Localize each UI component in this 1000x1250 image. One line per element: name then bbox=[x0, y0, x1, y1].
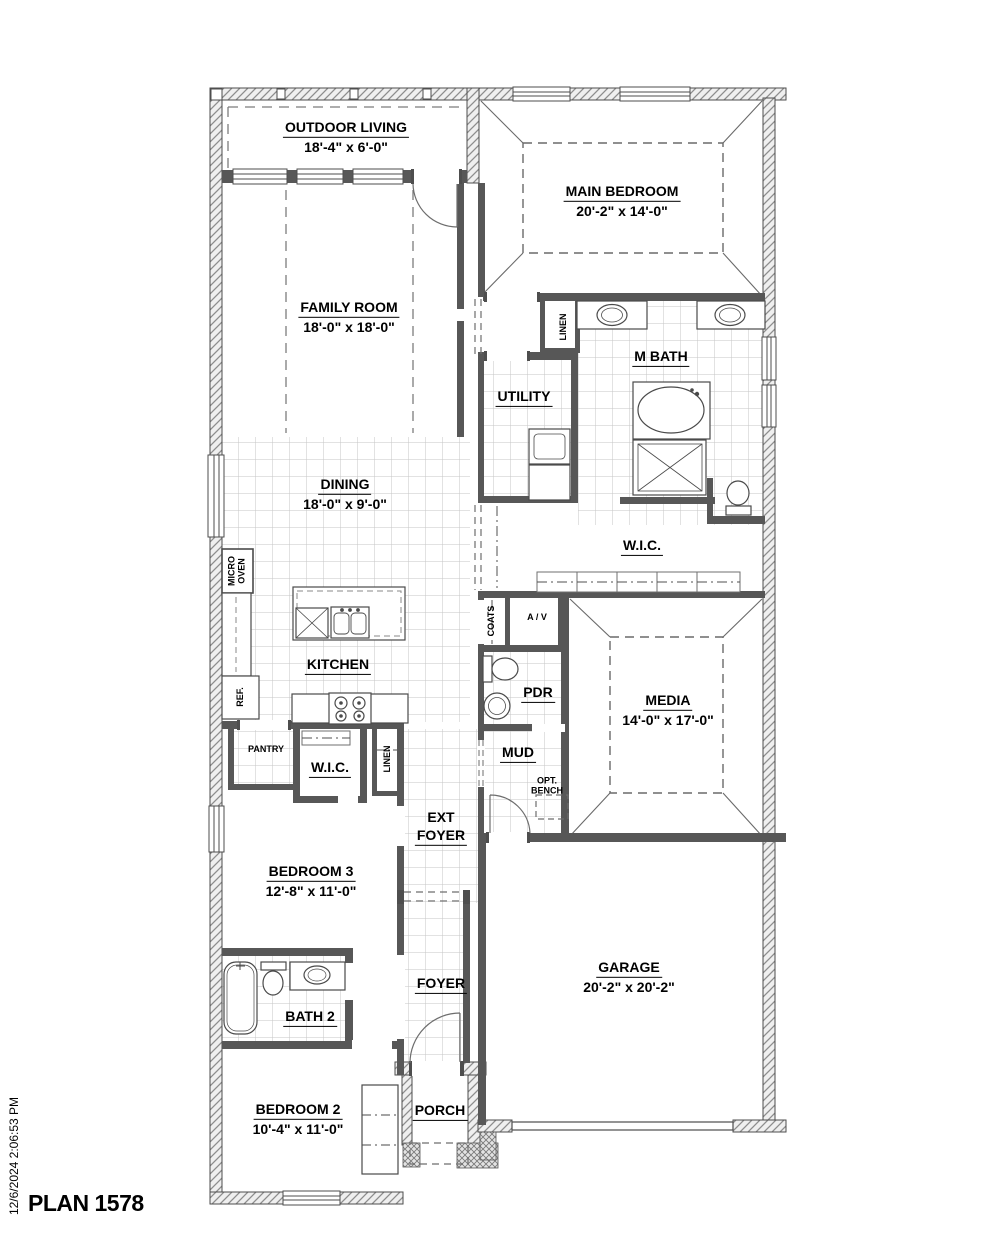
floor-plan: OUTDOOR LIVING 18'-4" x 6'-0" MAIN BEDRO… bbox=[0, 0, 1000, 1250]
room-label-wic-main: W.I.C. bbox=[621, 536, 663, 556]
mbath-toilet-tank bbox=[726, 506, 751, 515]
room-name-wic-bed3: W.I.C. bbox=[309, 758, 351, 778]
room-dims-outdoor-living: 18'-4" x 6'-0" bbox=[283, 138, 409, 156]
room-name-bedroom2: BEDROOM 2 bbox=[254, 1100, 343, 1120]
plan-title: PLAN 1578 bbox=[28, 1190, 144, 1217]
room-label-porch: PORCH bbox=[413, 1101, 468, 1121]
appliance-label-micro-oven: MICRO OVEN bbox=[227, 556, 248, 586]
bath2-toilet-icon bbox=[263, 971, 283, 995]
room-name-utility: UTILITY bbox=[496, 387, 553, 407]
room-name-ext-foyer: FOYER bbox=[415, 826, 467, 846]
room-label-bedroom2: BEDROOM 2 10'-4" x 11'-0" bbox=[253, 1100, 344, 1138]
room-name-ext: EXT bbox=[415, 808, 467, 826]
pdr-toilet-tank bbox=[483, 656, 492, 682]
appliance-label-ref: REF. bbox=[235, 687, 245, 707]
room-name-kitchen: KITCHEN bbox=[305, 655, 371, 675]
room-dims-bedroom3: 12'-8" x 11'-0" bbox=[266, 882, 357, 900]
room-label-dining: DINING 18'-0" x 9'-0" bbox=[303, 475, 387, 513]
room-dims-dining: 18'-0" x 9'-0" bbox=[303, 495, 387, 513]
room-dims-media: 14'-0" x 17'-0" bbox=[622, 711, 714, 729]
closet-label-linen-main: LINEN bbox=[558, 314, 568, 341]
mbath-toilet-icon bbox=[727, 481, 749, 505]
porch-stoops bbox=[403, 1132, 498, 1168]
room-label-family-room: FAMILY ROOM 18'-0" x 18'-0" bbox=[298, 298, 399, 336]
pdr-toilet-icon bbox=[492, 658, 518, 680]
kitchen-west-counter bbox=[222, 593, 251, 676]
closet-label-av: A / V bbox=[527, 612, 547, 622]
room-name-garage: GARAGE bbox=[596, 958, 661, 978]
room-name-bath2: BATH 2 bbox=[283, 1007, 337, 1027]
room-dims-bedroom2: 10'-4" x 11'-0" bbox=[253, 1120, 344, 1138]
room-name-wic-main: W.I.C. bbox=[621, 536, 663, 556]
print-timestamp: 12/6/2024 2:06:53 PM bbox=[7, 1097, 21, 1215]
room-label-pantry: PANTRY bbox=[248, 744, 284, 754]
room-name-outdoor-living: OUTDOOR LIVING bbox=[283, 118, 409, 138]
room-dims-family-room: 18'-0" x 18'-0" bbox=[298, 318, 399, 336]
room-name-mud: MUD bbox=[500, 743, 536, 763]
room-name-media: MEDIA bbox=[643, 691, 692, 711]
room-name-pantry: PANTRY bbox=[248, 744, 284, 754]
option-label-opt-bench: OPT. BENCH bbox=[531, 776, 563, 797]
closet-label-linen-hall: LINEN bbox=[382, 746, 392, 773]
cooktop-icon bbox=[329, 693, 371, 724]
room-dims-garage: 20'-2" x 20'-2" bbox=[583, 978, 675, 996]
room-label-garage: GARAGE 20'-2" x 20'-2" bbox=[583, 958, 675, 996]
mbath-tub-icon bbox=[638, 387, 704, 433]
room-label-utility: UTILITY bbox=[496, 387, 553, 407]
room-name-bedroom3: BEDROOM 3 bbox=[267, 862, 356, 882]
room-dims-main-bedroom: 20'-2" x 14'-0" bbox=[564, 202, 681, 220]
room-label-bath2: BATH 2 bbox=[283, 1007, 337, 1027]
room-label-m-bath: M BATH bbox=[632, 347, 689, 367]
room-name-family-room: FAMILY ROOM bbox=[298, 298, 399, 318]
room-label-wic-bed3: W.I.C. bbox=[309, 758, 351, 778]
room-label-pdr: PDR bbox=[521, 683, 555, 703]
room-label-ext-foyer: EXT FOYER bbox=[415, 808, 467, 846]
room-label-kitchen: KITCHEN bbox=[305, 655, 371, 675]
room-name-porch: PORCH bbox=[413, 1101, 468, 1121]
floor-pantry bbox=[234, 729, 293, 784]
room-label-mud: MUD bbox=[500, 743, 536, 763]
room-name-pdr: PDR bbox=[521, 683, 555, 703]
room-label-outdoor-living: OUTDOOR LIVING 18'-4" x 6'-0" bbox=[283, 118, 409, 156]
closet-label-coats: COATS bbox=[486, 606, 496, 637]
bath2-toilet-tank bbox=[261, 962, 286, 970]
room-label-media: MEDIA 14'-0" x 17'-0" bbox=[622, 691, 714, 729]
room-name-m-bath: M BATH bbox=[632, 347, 689, 367]
room-label-bedroom3: BEDROOM 3 12'-8" x 11'-0" bbox=[266, 862, 357, 900]
room-label-main-bedroom: MAIN BEDROOM 20'-2" x 14'-0" bbox=[564, 182, 681, 220]
utility-dryer-icon bbox=[529, 465, 570, 500]
room-name-dining: DINING bbox=[318, 475, 371, 495]
patio-corner-column bbox=[211, 89, 222, 100]
room-label-foyer: FOYER bbox=[415, 974, 467, 994]
bedroom2-closet bbox=[362, 1085, 398, 1174]
room-name-main-bedroom: MAIN BEDROOM bbox=[564, 182, 681, 202]
room-name-foyer: FOYER bbox=[415, 974, 467, 994]
floor-plan-canvas bbox=[0, 0, 1000, 1250]
